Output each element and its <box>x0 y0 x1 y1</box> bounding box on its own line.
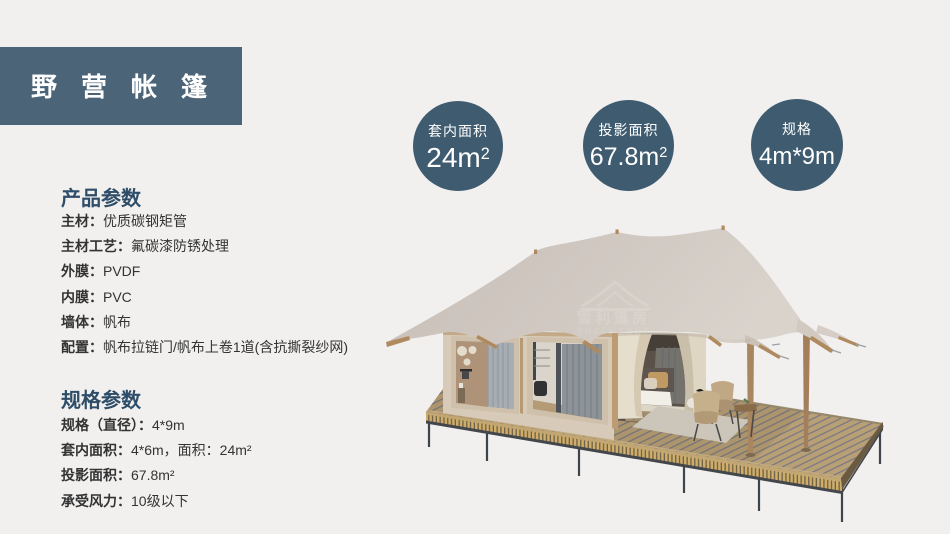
svg-text:XUELI TENT: XUELI TENT <box>577 326 651 336</box>
svg-text:雪利篷房: 雪利篷房 <box>577 309 651 327</box>
